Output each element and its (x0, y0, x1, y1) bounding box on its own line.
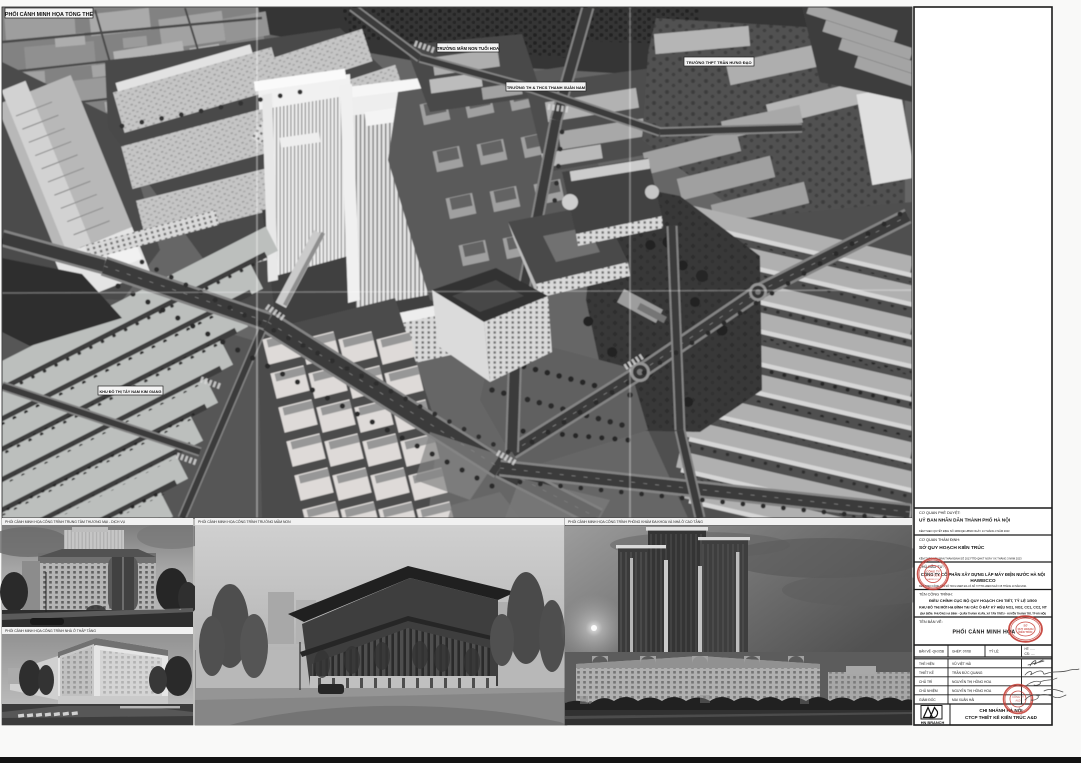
svg-text:PHỐI CẢNH MINH HỌA: PHỐI CẢNH MINH HỌA (952, 629, 1015, 636)
svg-text:CƠ QUAN PHÊ DUYỆT:: CƠ QUAN PHÊ DUYỆT: (919, 510, 960, 515)
svg-text:TÊN BẢN VẼ:: TÊN BẢN VẼ: (919, 619, 943, 624)
svg-text:KHU ĐÔ THỊ TÂY NAM KIM GIANG: KHU ĐÔ THỊ TÂY NAM KIM GIANG (100, 389, 162, 394)
svg-text:GHÉP: 07/08: GHÉP: 07/08 (952, 649, 971, 654)
svg-text:TỶ LỆ:: TỶ LỆ: (989, 649, 999, 654)
svg-text:BẢN VẼ -QH:05B: BẢN VẼ -QH:05B (919, 649, 944, 654)
svg-text:PHỐI CẢNH MINH HỌA CÔNG TRÌNH: PHỐI CẢNH MINH HỌA CÔNG TRÌNH PHÒNG KHÁM… (568, 519, 703, 524)
svg-text:ĐIỀU CHỈNH CỤC BỘ QUY HOẠCH CH: ĐIỀU CHỈNH CỤC BỘ QUY HOẠCH CHI TIẾT, TỶ… (929, 598, 1037, 603)
svg-text:PHỐI CẢNH MINH HỌA CÔNG TRÌNH: PHỐI CẢNH MINH HỌA CÔNG TRÌNH TRƯỜNG MẦM… (198, 519, 291, 524)
svg-text:HT: .....: HT: ..... (1025, 647, 1035, 651)
svg-text:TRƯỜNG TH & THCS THANH XUÂN NA: TRƯỜNG TH & THCS THANH XUÂN NAM (507, 85, 586, 90)
svg-text:VŨ VIỆT HẢI: VŨ VIỆT HẢI (952, 661, 971, 666)
svg-text:NGUYỄN THỊ HỒNG HOA: NGUYỄN THỊ HỒNG HOA (952, 688, 992, 693)
svg-text:TRẦN ĐỨC QUANG: TRẦN ĐỨC QUANG (952, 671, 983, 675)
svg-text:CÔNG TY: CÔNG TY (926, 569, 940, 574)
svg-text:CƠ QUAN THẨM ĐỊNH:: CƠ QUAN THẨM ĐỊNH: (919, 537, 960, 542)
svg-text:PHỐI CẢNH MINH HỌA CÔNG TRÌNH: PHỐI CẢNH MINH HỌA CÔNG TRÌNH TRUNG TÂM … (5, 519, 126, 524)
svg-text:CP XÂY DỰNG: CP XÂY DỰNG (925, 575, 942, 578)
svg-text:GIÁM ĐỐC: GIÁM ĐỐC (919, 697, 936, 702)
svg-text:HAWEICCO: HAWEICCO (927, 578, 939, 581)
svg-text:HAWEICCO: HAWEICCO (970, 578, 996, 583)
svg-text:TRƯỜNG THPT TRẦN HƯNG ĐẠO: TRƯỜNG THPT TRẦN HƯNG ĐẠO (686, 60, 751, 65)
svg-text:HN BRANCH: HN BRANCH (921, 720, 945, 725)
svg-text:THỂ HIỆN: THỂ HIỆN (919, 661, 935, 666)
svg-text:TRƯỜNG MẦM NON TUỔI HOA: TRƯỜNG MẦM NON TUỔI HOA (437, 46, 499, 51)
svg-text:SỞ QUY HOẠCH KIẾN TRÚC: SỞ QUY HOẠCH KIẾN TRÚC (919, 544, 985, 551)
svg-text:TÊN CÔNG TRÌNH:: TÊN CÔNG TRÌNH: (919, 592, 953, 597)
svg-text:KHU ĐÔ THỊ MỚI HẠ ĐÌNH TẠI CÁC: KHU ĐÔ THỊ MỚI HẠ ĐÌNH TẠI CÁC Ô ĐẤT KÝ … (919, 605, 1048, 610)
svg-text:A&D: A&D (1016, 700, 1021, 703)
svg-text:CHỦ NHIỆM: CHỦ NHIỆM (919, 688, 938, 693)
svg-text:THIẾT KẾ: THIẾT KẾ (919, 670, 935, 675)
svg-text:PHỐI CẢNH MINH HỌA CÔNG TRÌNH: PHỐI CẢNH MINH HỌA CÔNG TRÌNH NHÀ Ở THẤP… (5, 628, 96, 633)
svg-text:CS: .....: CS: ..... (1025, 652, 1036, 656)
svg-text:PHỐI CẢNH MINH HỌA TỔNG THỂ: PHỐI CẢNH MINH HỌA TỔNG THỂ (5, 11, 94, 18)
svg-text:CTCP THIẾT KẾ KIẾN TRÚC A&D: CTCP THIẾT KẾ KIẾN TRÚC A&D (965, 714, 1038, 720)
svg-text:UỶ BAN NHÂN DÂN THÀNH PHỐ HÀ N: UỶ BAN NHÂN DÂN THÀNH PHỐ HÀ NỘI (919, 516, 1010, 523)
svg-text:MAI XUÂN HẢI: MAI XUÂN HẢI (952, 697, 974, 702)
svg-text:CHỦ TRÌ: CHỦ TRÌ (919, 679, 932, 684)
svg-text:NGUYỄN THỊ HỒNG HOA: NGUYỄN THỊ HỒNG HOA (952, 679, 992, 684)
